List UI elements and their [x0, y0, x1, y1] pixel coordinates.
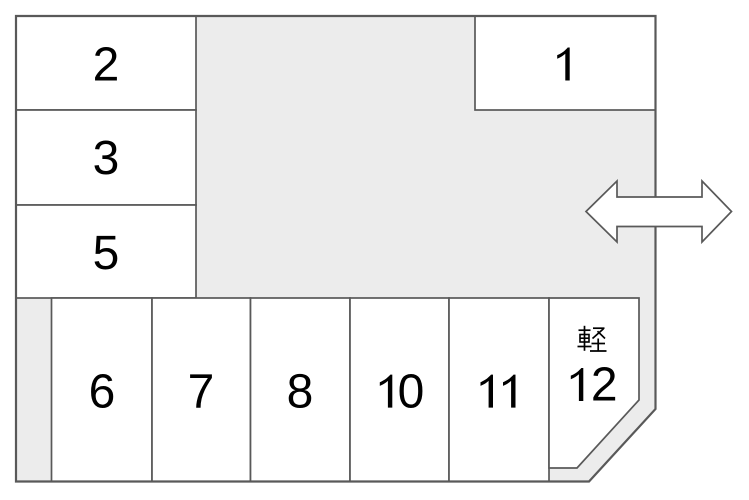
svg-text:3: 3	[93, 132, 120, 185]
svg-text:5: 5	[93, 227, 120, 280]
svg-text:8: 8	[287, 366, 314, 419]
svg-text:2: 2	[93, 39, 120, 92]
svg-text:2: 2	[591, 359, 618, 412]
svg-text:7: 7	[188, 366, 215, 419]
svg-text:6: 6	[89, 366, 116, 419]
svg-text:0: 0	[398, 366, 425, 419]
